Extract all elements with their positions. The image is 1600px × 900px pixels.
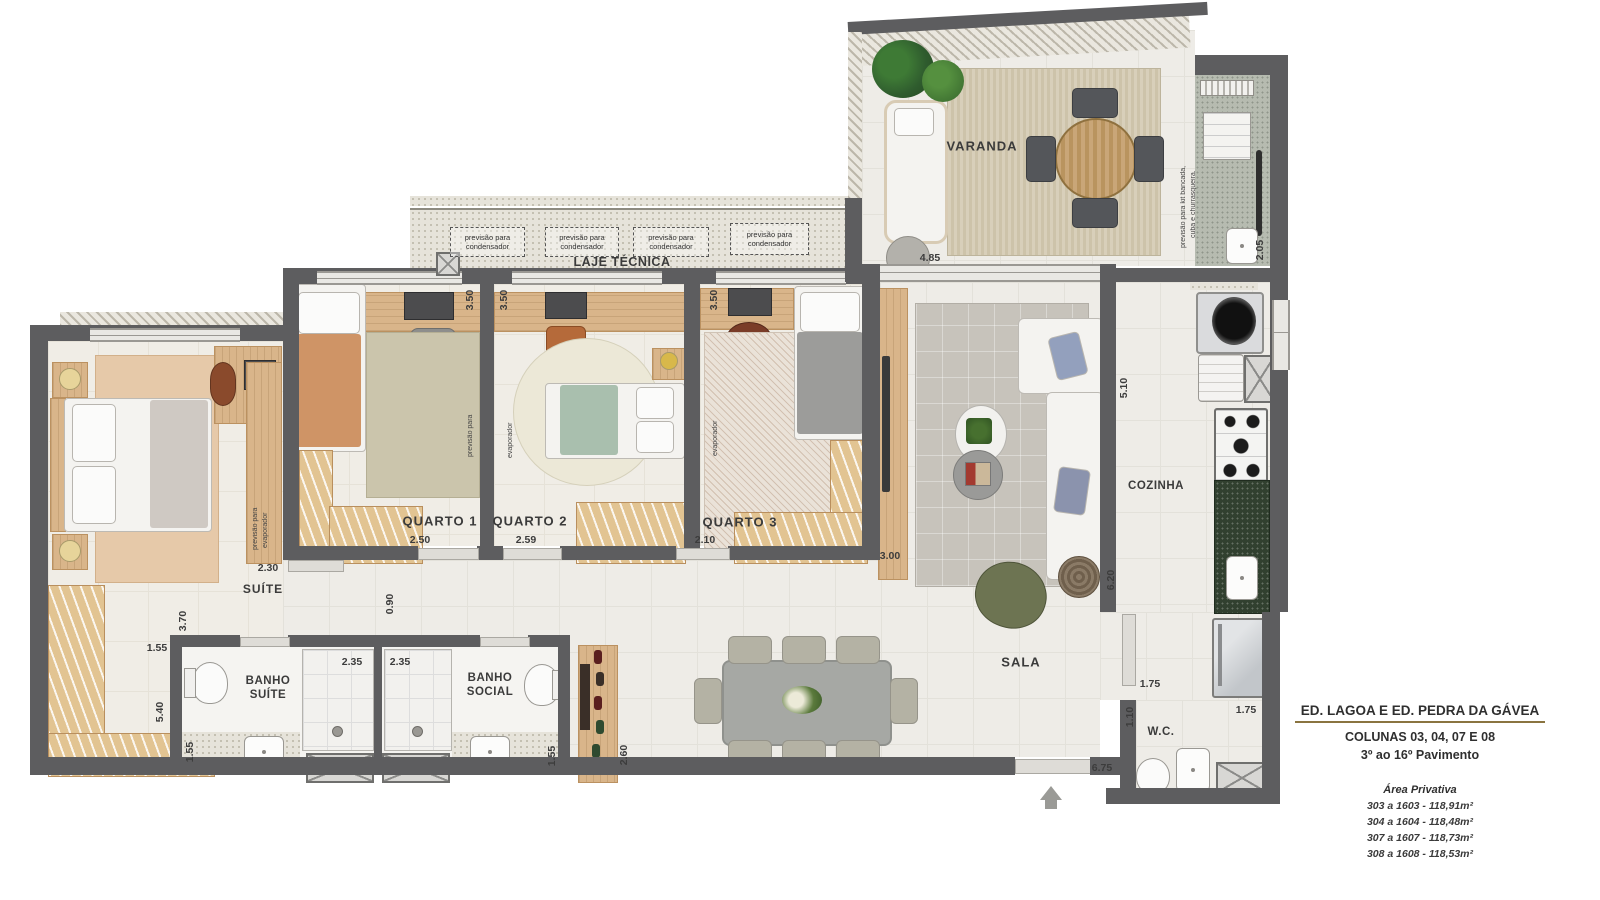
shower-head-icon xyxy=(332,726,343,737)
stove-cooktop xyxy=(1214,408,1268,484)
varanda-chair xyxy=(1072,88,1118,118)
room-label-banho-suite: BANHO SUÍTE xyxy=(246,675,291,703)
dimension-label: 3.50 xyxy=(498,290,510,310)
churrasqueira-bench xyxy=(1203,112,1251,160)
dimension-label: 6.20 xyxy=(1105,570,1117,590)
condenser-note-text: previsão para condensador xyxy=(731,230,808,249)
monitor-icon xyxy=(728,288,772,316)
banho-social-line1: BANHO xyxy=(467,672,513,686)
dimension-label: 2.50 xyxy=(410,534,430,546)
laje-tecnica-edge xyxy=(410,196,848,206)
area-line: 308 a 1608 - 118,53m² xyxy=(1290,848,1550,860)
condenser-note: previsão para condensador xyxy=(450,227,525,257)
monitor-icon xyxy=(404,292,454,320)
dimension-label: 1.75 xyxy=(1140,678,1160,690)
dimension-label: 2.60 xyxy=(618,745,630,765)
kit-bancada-note-2: cuba e churrasqueira. xyxy=(1190,126,1197,238)
dimension-label: 3.50 xyxy=(708,290,720,310)
washing-machine-drum xyxy=(1212,297,1256,345)
condenser-note: previsão para condensador xyxy=(545,227,619,257)
shower-head-icon xyxy=(412,726,423,737)
quarto3-window xyxy=(716,271,846,285)
wall-bath-left xyxy=(170,635,182,757)
toilet-icon xyxy=(192,662,228,704)
monitor-icon xyxy=(545,292,587,319)
wall-bath-top-b xyxy=(288,635,480,647)
quarto1-door xyxy=(418,548,479,560)
wall-varanda-right xyxy=(1270,55,1288,282)
dimension-label: 2.30 xyxy=(258,562,278,574)
quarto1-pillow xyxy=(298,292,360,334)
room-label-suite: SUÍTE xyxy=(243,582,283,596)
evaporator-note: evaporador xyxy=(712,390,719,456)
dimension-label: 3.70 xyxy=(177,611,189,631)
suite-blanket xyxy=(150,400,208,528)
floors-line: 3º ao 16º Pavimento xyxy=(1290,748,1550,762)
dimension-label: 3.00 xyxy=(880,550,900,562)
quarto2-desk xyxy=(494,292,686,332)
side-table xyxy=(1058,556,1100,598)
info-panel: ED. LAGOA E ED. PEDRA DA GÁVEA COLUNAS 0… xyxy=(1290,702,1550,860)
kit-bancada-note-1: previsão para kit bancada, xyxy=(1180,116,1187,248)
area-line: 304 a 1604 - 118,48m² xyxy=(1290,816,1550,828)
quarto1-rug xyxy=(366,332,480,498)
varanda-daybed-pillow xyxy=(894,108,934,136)
dimension-label: 2.35 xyxy=(342,656,362,668)
wc-door xyxy=(1122,614,1136,686)
building-title: ED. LAGOA E ED. PEDRA DA GÁVEA xyxy=(1295,703,1546,723)
quarto3-door xyxy=(676,548,730,560)
churrasqueira-handle xyxy=(1256,150,1262,236)
wine-bottle-icon xyxy=(596,720,604,734)
dimension-label: 5.40 xyxy=(154,702,166,722)
varanda-chair xyxy=(1134,136,1164,182)
plant-icon xyxy=(922,60,964,102)
evaporator-note: evaporador xyxy=(507,392,514,458)
entry-arrow-icon xyxy=(1040,786,1062,800)
coffee-table-plant xyxy=(966,418,992,444)
area-line: 303 a 1603 - 118,91m² xyxy=(1290,800,1550,812)
varanda-sliding-door xyxy=(880,264,1100,282)
wall-sala-top-stub-l xyxy=(862,264,880,282)
room-label-quarto1: QUARTO 1 xyxy=(403,514,478,529)
grill-grate xyxy=(1200,80,1254,96)
coffee-table-book xyxy=(965,462,991,486)
quarto2-window xyxy=(512,271,662,285)
wall-left xyxy=(30,325,48,775)
suite-window-planter xyxy=(60,312,283,326)
dimension-label: 1.55 xyxy=(184,742,196,762)
wall-q-bottom-a xyxy=(299,546,418,560)
tv-icon xyxy=(882,356,890,492)
wall-q-bottom-b xyxy=(477,546,503,560)
banho-social-door xyxy=(480,637,530,647)
varanda-left-planter xyxy=(848,32,862,198)
dining-chair xyxy=(836,636,880,664)
banho-suite-line1: BANHO xyxy=(246,675,291,689)
condenser-note-text: previsão para condensador xyxy=(451,233,524,252)
suite-pillow xyxy=(72,466,116,524)
suite-pillow xyxy=(72,404,116,462)
condenser-note-text: previsão para condensador xyxy=(546,233,618,252)
quarto3-blanket xyxy=(797,332,863,434)
wall-kitchen-left xyxy=(1100,268,1116,612)
dining-chair xyxy=(694,678,722,724)
dimension-label: 6.75 xyxy=(1092,762,1112,774)
dimension-label: 1.10 xyxy=(1124,707,1136,727)
entry-door xyxy=(1015,759,1092,774)
kitchen-sink xyxy=(1226,556,1258,600)
banho-suite-line2: SUÍTE xyxy=(246,689,291,703)
wall-q-bottom-c xyxy=(560,546,676,560)
room-label-laje-tecnica: LAJE TÉCNICA xyxy=(574,255,671,269)
wine-bottle-icon xyxy=(592,744,600,758)
dining-chair xyxy=(728,636,772,664)
wall-varanda-left-chunk xyxy=(845,198,862,282)
suite-lamp xyxy=(59,368,81,390)
kitchen-window xyxy=(1272,300,1290,370)
wall-kitchen-top xyxy=(1114,268,1270,282)
wall-bath-right xyxy=(558,635,570,757)
suite-door xyxy=(288,560,344,572)
dimension-label: 4.85 xyxy=(920,252,940,264)
varanda-table xyxy=(1055,118,1137,200)
wall-suite-right xyxy=(283,268,299,560)
dining-centerpiece xyxy=(782,686,822,714)
condenser-note: previsão para condensador xyxy=(730,223,809,255)
wall-churras-top xyxy=(1195,55,1288,75)
evaporator-note: previsão para xyxy=(467,385,474,457)
varanda-chair xyxy=(1072,198,1118,228)
floor-plan: previsão para condensador previsão para … xyxy=(0,0,1600,900)
wine-bottle-icon xyxy=(594,650,602,664)
refrigerator-handle xyxy=(1218,624,1222,686)
condenser-note-text: previsão para condensador xyxy=(634,233,708,252)
dimension-label: 1.55 xyxy=(147,642,167,654)
dimension-label: 2.05 xyxy=(1254,240,1266,260)
banho-social-line2: SOCIAL xyxy=(467,686,513,700)
toilet-tank xyxy=(184,668,196,698)
room-label-cozinha: COZINHA xyxy=(1128,480,1184,492)
wine-bottle-icon xyxy=(596,672,604,686)
room-label-quarto2: QUARTO 2 xyxy=(493,514,568,529)
wall-bottom-main xyxy=(30,757,1015,775)
quarto1-blanket xyxy=(295,334,361,447)
wine-bottle-icon xyxy=(594,696,602,710)
dimension-label: 2.59 xyxy=(516,534,536,546)
dimension-label: 2.10 xyxy=(695,534,715,546)
room-label-quarto3: QUARTO 3 xyxy=(703,515,778,530)
suite-desk-chair xyxy=(210,362,236,406)
quarto3-pillow xyxy=(800,292,860,332)
wall-wc-bottom xyxy=(1106,788,1278,804)
dimension-label: 1.75 xyxy=(1236,704,1256,716)
banho-suite-door xyxy=(240,637,290,647)
wall-q-bottom-d xyxy=(728,546,862,560)
wall-bath-mid xyxy=(374,647,382,757)
suite-lamp xyxy=(59,540,81,562)
suite-window xyxy=(90,328,240,342)
area-line: 307 a 1607 - 118,73m² xyxy=(1290,832,1550,844)
wine-rack-shelf xyxy=(580,664,590,730)
quarto2-pillow xyxy=(636,421,674,453)
entry-arrow-stem xyxy=(1045,800,1057,809)
quarto2-blanket xyxy=(560,385,618,455)
suite-evaporator-note-1: previsão para xyxy=(252,474,259,550)
dishwasher xyxy=(1198,354,1244,402)
dining-chair xyxy=(782,636,826,664)
suite-closet-vertical xyxy=(48,585,105,737)
wall-right-lower xyxy=(1262,612,1280,804)
dimension-label: 5.10 xyxy=(1118,378,1130,398)
dimension-label: 0.90 xyxy=(384,594,396,614)
wc-sink xyxy=(1176,748,1210,792)
quarto2-door xyxy=(503,548,562,560)
varanda-chair xyxy=(1026,136,1056,182)
columns-line: COLUNAS 03, 04, 07 E 08 xyxy=(1290,730,1550,744)
dimension-label: 1.55 xyxy=(546,746,558,766)
room-label-sala: SALA xyxy=(1001,655,1040,670)
room-label-wc: W.C. xyxy=(1148,726,1175,738)
sofa-pillow xyxy=(1053,466,1091,516)
condenser-note: previsão para condensador xyxy=(633,227,709,257)
quarto2-pillow xyxy=(636,387,674,419)
suite-evaporator-note-2: evaporador xyxy=(262,478,269,548)
wall-sala-top-stub-r xyxy=(1100,264,1116,282)
room-label-varanda: VARANDA xyxy=(946,139,1017,154)
wall-q2-q3 xyxy=(684,284,700,560)
room-label-banho-social: BANHO SOCIAL xyxy=(467,672,513,700)
dining-chair xyxy=(890,678,918,724)
quarto2-lamp xyxy=(660,352,678,370)
dimension-label: 3.50 xyxy=(464,290,476,310)
private-area-heading: Área Privativa xyxy=(1290,784,1550,796)
dimension-label: 2.35 xyxy=(390,656,410,668)
wall-q3-sala xyxy=(862,268,880,560)
